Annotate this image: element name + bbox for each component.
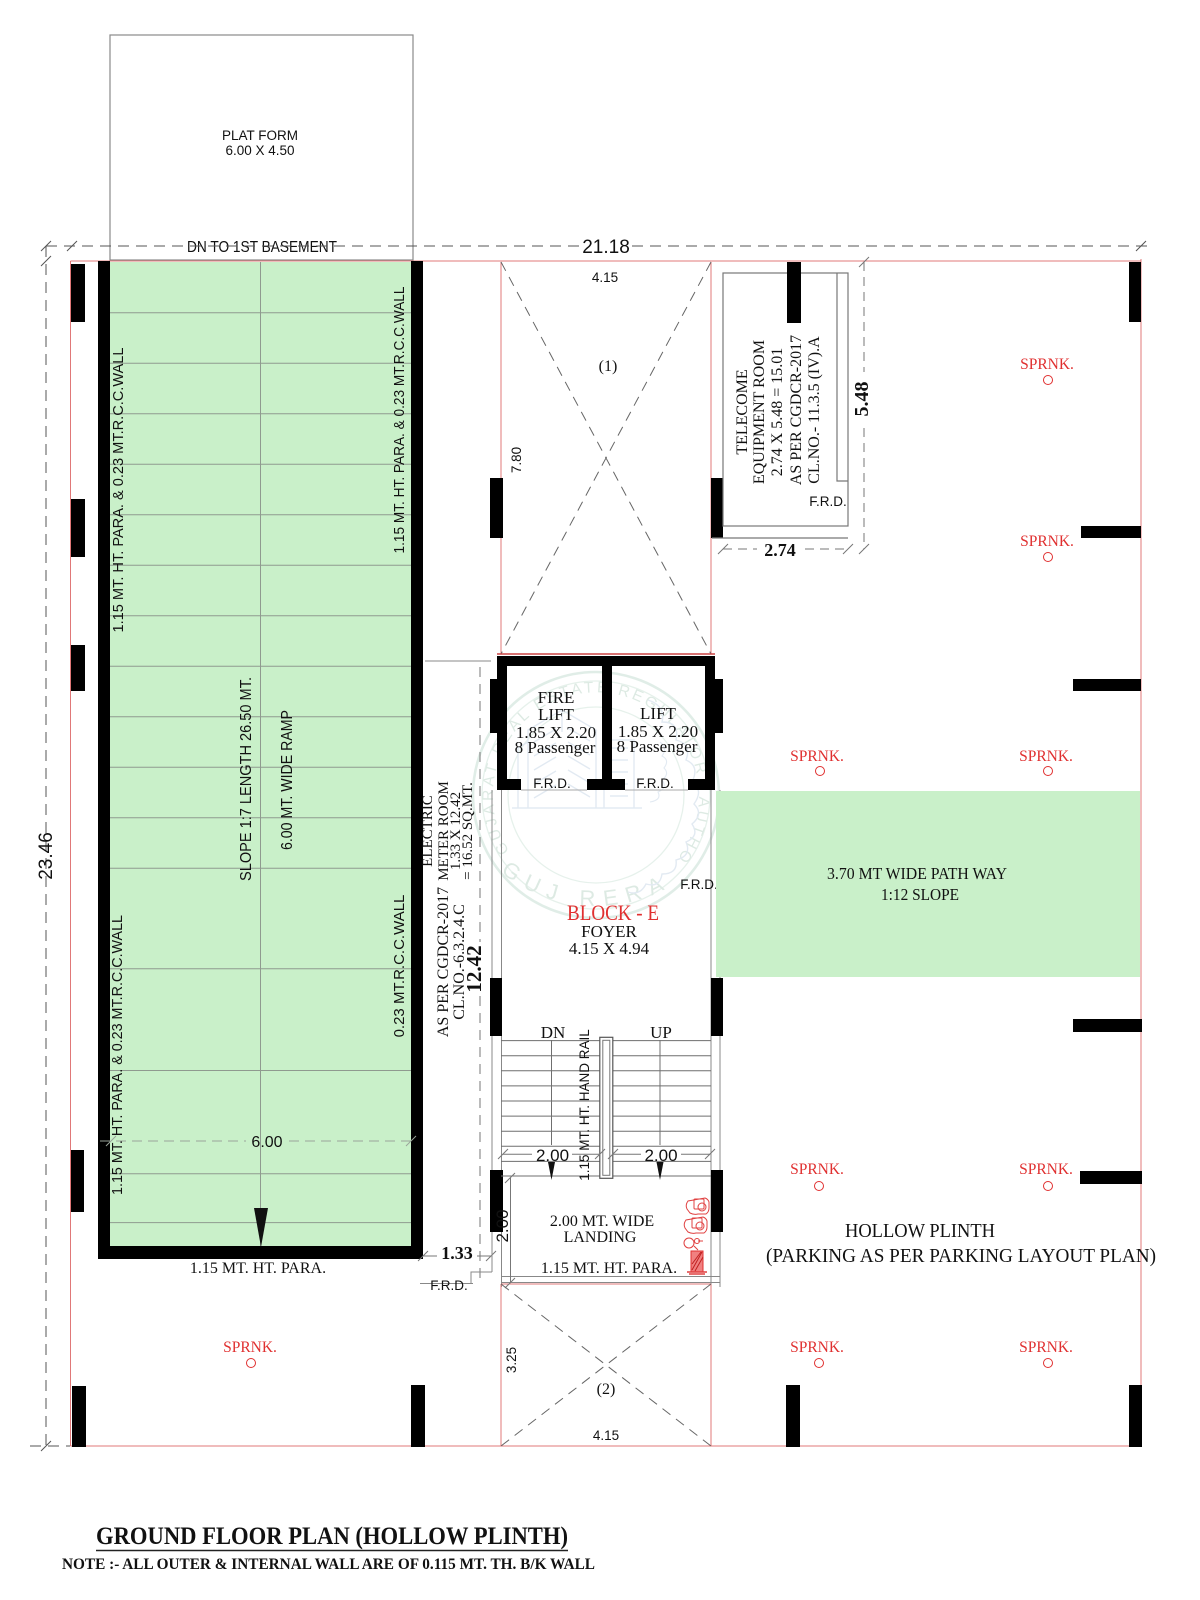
svg-text:TELECOME: TELECOME: [734, 369, 751, 454]
svg-text:6.00 X 4.50: 6.00 X 4.50: [225, 143, 294, 158]
svg-text:F.R.D.: F.R.D.: [636, 776, 674, 791]
svg-text:2.00 MT. WIDE: 2.00 MT. WIDE: [550, 1213, 654, 1230]
svg-text:0.23 MT.R.C.C.WALL: 0.23 MT.R.C.C.WALL: [391, 895, 408, 1038]
svg-text:4.15: 4.15: [593, 1428, 619, 1443]
svg-text:2.74 X 5.48 = 15.01: 2.74 X 5.48 = 15.01: [769, 348, 786, 477]
svg-text:6.00: 6.00: [251, 1134, 282, 1151]
svg-text:UP: UP: [650, 1023, 672, 1042]
svg-text:F.R.D.: F.R.D.: [533, 776, 571, 791]
svg-text:SPRNK.: SPRNK.: [790, 1339, 844, 1356]
svg-text:1:12 SLOPE: 1:12 SLOPE: [881, 885, 959, 904]
svg-text:1.15 MT. HT. PARA. & 0.23 MT.R: 1.15 MT. HT. PARA. & 0.23 MT.R.C.C.WALL: [110, 348, 127, 633]
svg-text:SPRNK.: SPRNK.: [1020, 356, 1074, 373]
svg-text:3.70 MT WIDE PATH WAY: 3.70 MT WIDE PATH WAY: [827, 864, 1007, 883]
svg-text:SLOPE 1:7 LENGTH 26.50 MT.: SLOPE 1:7 LENGTH 26.50 MT.: [238, 677, 255, 881]
svg-text:1.15 MT. HT. PARA.: 1.15 MT. HT. PARA.: [541, 1260, 677, 1277]
svg-text:CL.NO.- 11.3.5 (IV).A: CL.NO.- 11.3.5 (IV).A: [806, 336, 823, 484]
svg-text:3.25: 3.25: [504, 1347, 519, 1373]
svg-text:SPRNK.: SPRNK.: [1019, 1339, 1073, 1356]
svg-text:F.R.D.: F.R.D.: [680, 877, 718, 892]
svg-text:2.00: 2.00: [493, 1209, 512, 1242]
svg-text:(PARKING AS PER PARKING LAYOUT: (PARKING AS PER PARKING LAYOUT PLAN): [766, 1245, 1156, 1267]
svg-text:= 16.52 SQ.MT.: = 16.52 SQ.MT.: [460, 782, 476, 880]
svg-text:1.15 MT. HT. HAND RAIL: 1.15 MT. HT. HAND RAIL: [577, 1029, 592, 1181]
svg-text:1.15 MT. HT. PARA. & 0.23 MT.R: 1.15 MT. HT. PARA. & 0.23 MT.R.C.C.WALL: [391, 287, 408, 554]
svg-text:6.00 MT. WIDE RAMP: 6.00 MT. WIDE RAMP: [279, 710, 296, 850]
svg-text:LIFT: LIFT: [640, 704, 677, 723]
svg-text:4.15 X 4.94: 4.15 X 4.94: [569, 939, 650, 958]
svg-text:GROUND FLOOR PLAN (HOLLOW PLIN: GROUND FLOOR PLAN (HOLLOW PLINTH): [96, 1523, 568, 1550]
svg-text:5.48: 5.48: [851, 382, 873, 417]
svg-text:EQUIPMENT ROOM: EQUIPMENT ROOM: [751, 340, 768, 484]
svg-text:8 Passenger: 8 Passenger: [515, 738, 596, 757]
svg-text:AS PER CGDCR-2017: AS PER CGDCR-2017: [435, 887, 452, 1037]
svg-text:SPRNK.: SPRNK.: [790, 1161, 844, 1178]
svg-text:8 Passenger: 8 Passenger: [617, 737, 698, 756]
svg-text:1.15 MT. HT. PARA. & 0.23 MT.R: 1.15 MT. HT. PARA. & 0.23 MT.R.C.C.WALL: [109, 915, 126, 1195]
svg-text:DN TO 1ST BASEMENT: DN TO 1ST BASEMENT: [187, 239, 337, 256]
svg-text:(2): (2): [597, 1381, 616, 1398]
svg-text:SPRNK.: SPRNK.: [223, 1339, 277, 1356]
svg-text:SPRNK.: SPRNK.: [790, 748, 844, 765]
svg-text:12.42: 12.42: [462, 945, 486, 992]
svg-text:HOLLOW PLINTH: HOLLOW PLINTH: [845, 1220, 995, 1242]
svg-text:7.80: 7.80: [509, 447, 524, 473]
svg-text:SPRNK.: SPRNK.: [1019, 748, 1073, 765]
svg-text:2.00: 2.00: [536, 1146, 569, 1165]
svg-text:SPRNK.: SPRNK.: [1019, 1161, 1073, 1178]
svg-text:1.33: 1.33: [441, 1243, 473, 1263]
svg-text:F.R.D.: F.R.D.: [430, 1278, 468, 1293]
svg-text:1.15 MT. HT. PARA.: 1.15 MT. HT. PARA.: [190, 1260, 326, 1277]
svg-text:PLAT FORM: PLAT FORM: [222, 128, 298, 143]
svg-text:LANDING: LANDING: [564, 1229, 637, 1246]
svg-text:4.15: 4.15: [592, 270, 618, 285]
svg-text:AS PER CGDCR-2017: AS PER CGDCR-2017: [788, 335, 805, 485]
svg-text:2.00: 2.00: [644, 1146, 677, 1165]
svg-text:23.46: 23.46: [36, 832, 57, 880]
svg-text:SPRNK.: SPRNK.: [1020, 533, 1074, 550]
svg-text:21.18: 21.18: [582, 237, 630, 258]
svg-text:2.74: 2.74: [764, 540, 796, 560]
svg-text:DN: DN: [541, 1023, 566, 1042]
svg-text:NOTE :- ALL OUTER & INTERNAL W: NOTE :- ALL OUTER & INTERNAL WALL ARE OF…: [62, 1556, 595, 1573]
svg-text:(1): (1): [599, 358, 618, 375]
svg-text:ELECTRIC: ELECTRIC: [420, 795, 436, 867]
svg-text:F.R.D.: F.R.D.: [809, 494, 847, 509]
svg-text:LIFT: LIFT: [538, 705, 575, 724]
